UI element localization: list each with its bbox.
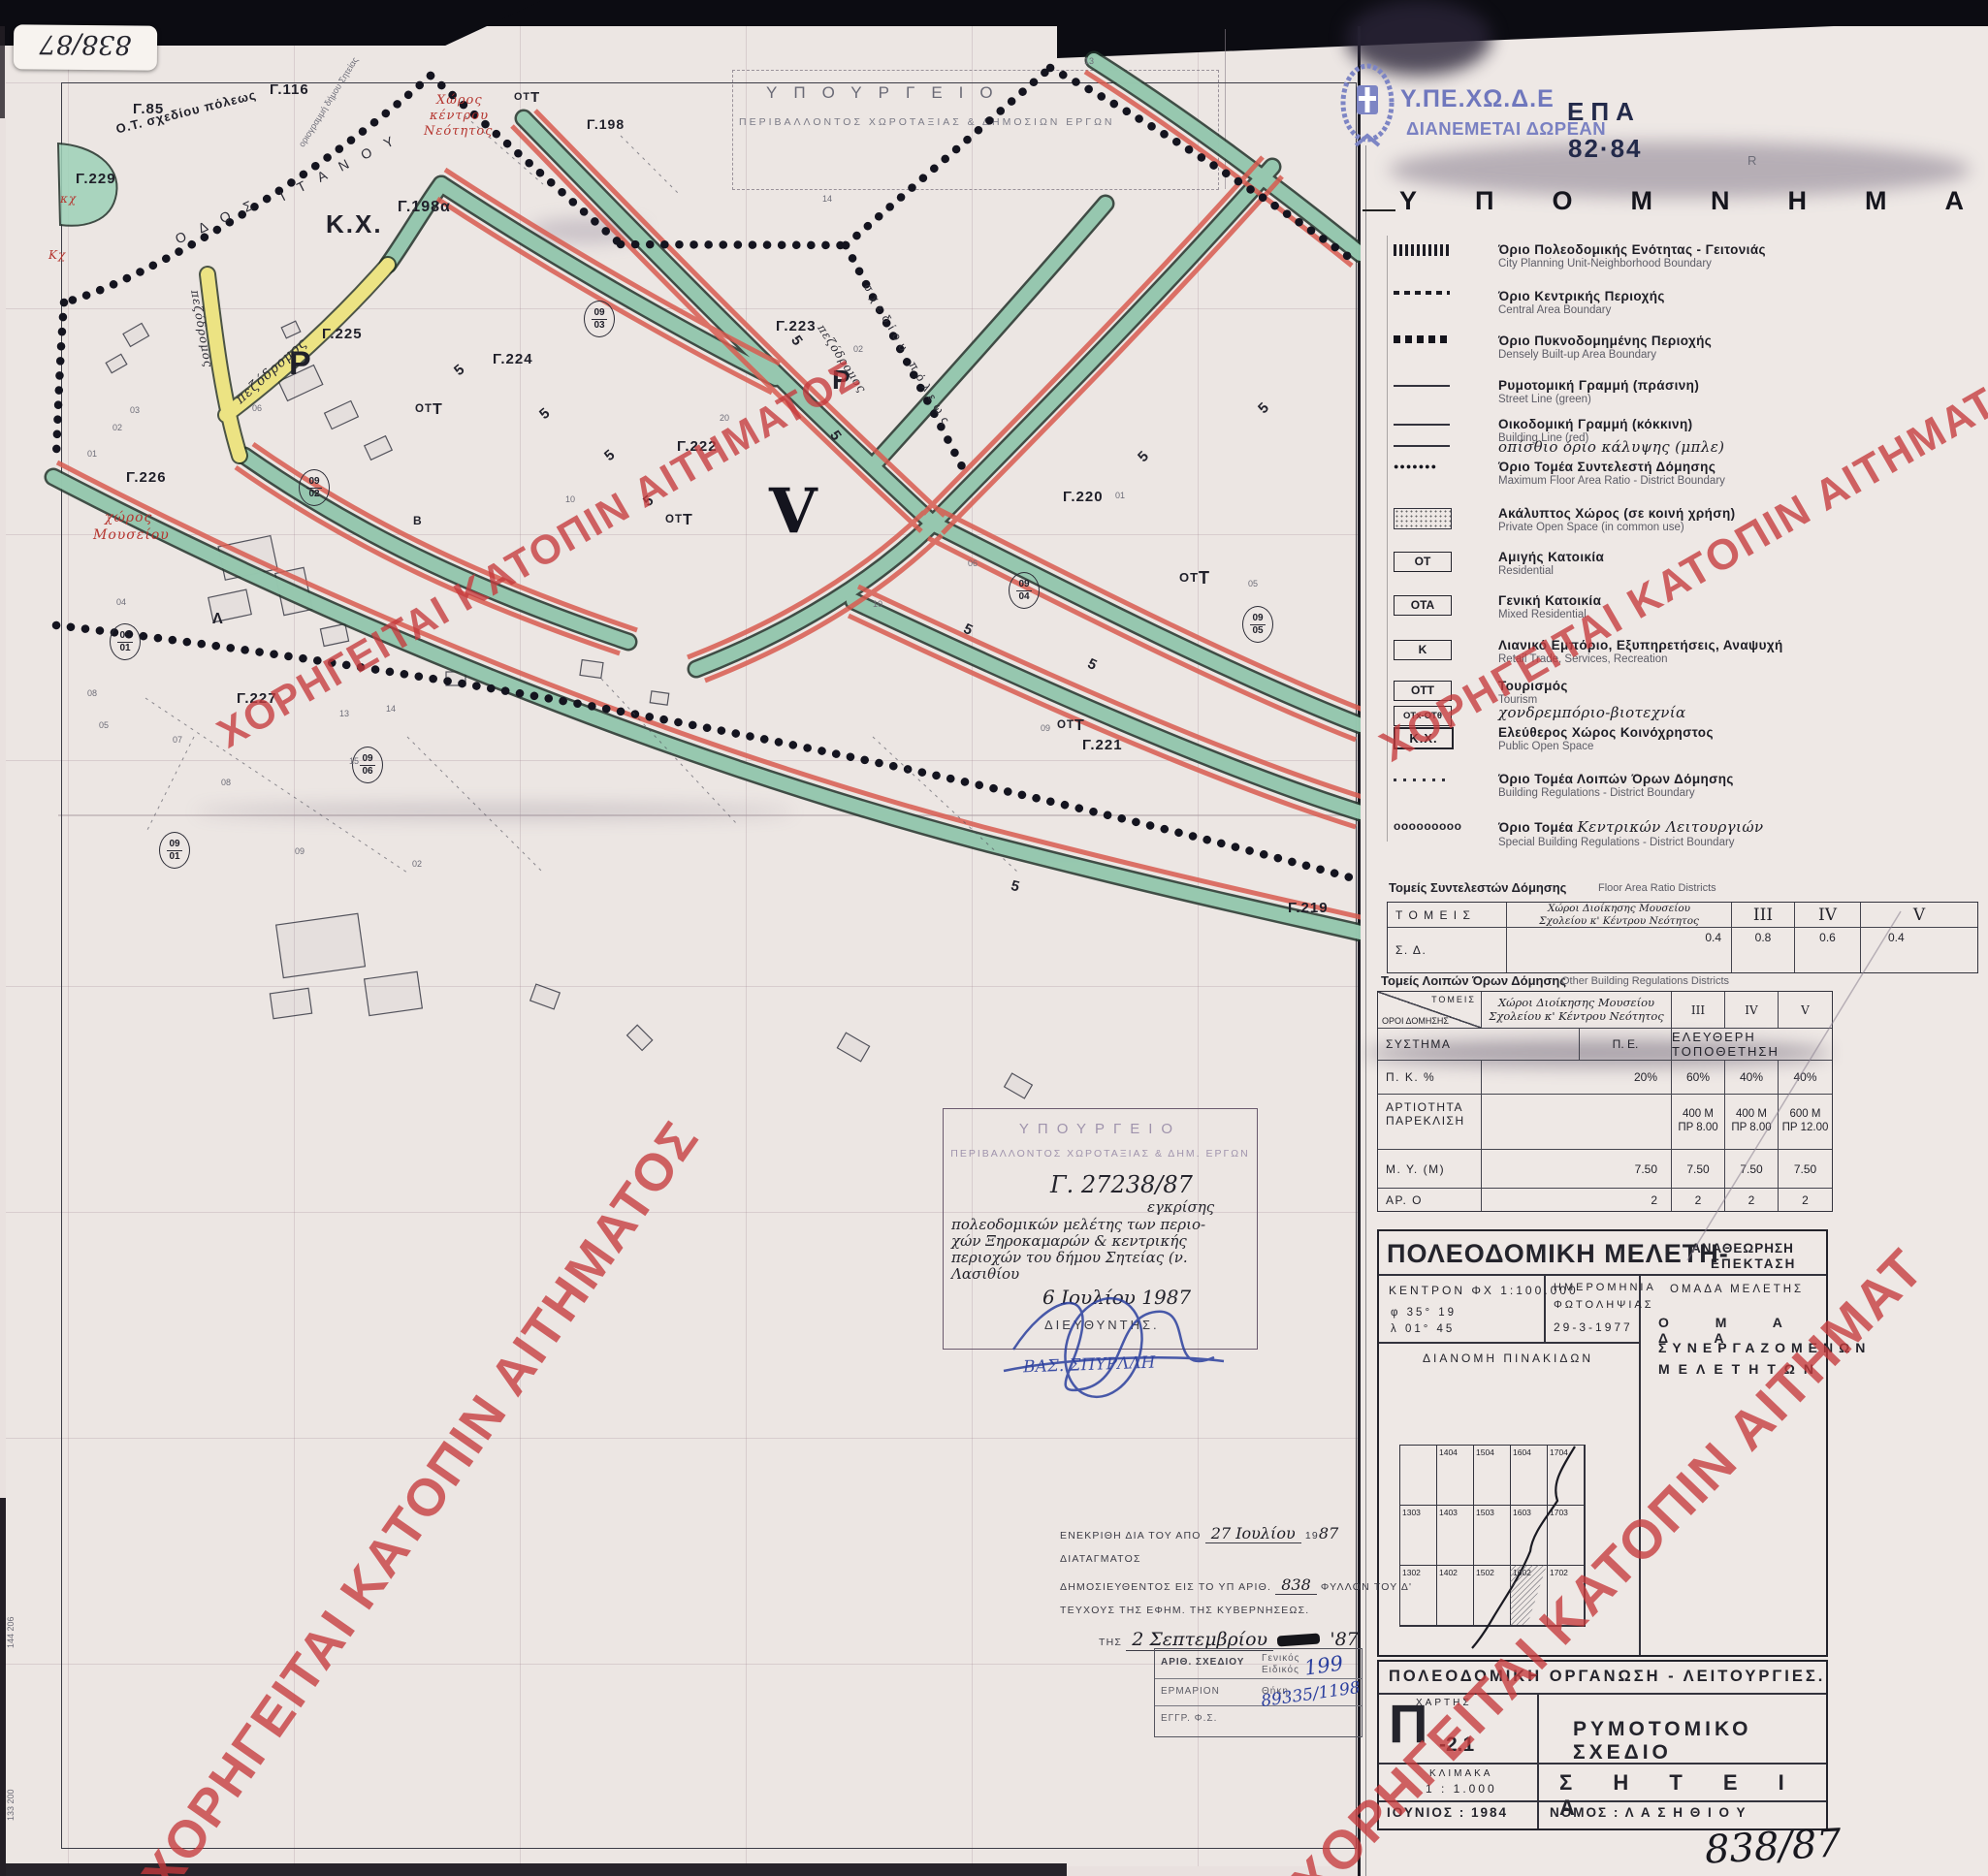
map-label: 14 xyxy=(386,704,396,714)
legend-label-gr: Όριο Τομέα Κεντρικών Λειτουργιών xyxy=(1498,818,1964,836)
map-label: Γ.198 xyxy=(587,116,625,132)
obr-aro-v: 2 xyxy=(1779,1189,1832,1211)
map-label: 0904 xyxy=(1009,572,1040,609)
far-value-iv: 0.6 xyxy=(1795,928,1861,972)
map-label: V xyxy=(769,475,818,548)
obr-diag-cell: ΤΟΜΕΙΣ ΟΡΟΙ ΔΟΜΗΣΗΣ xyxy=(1378,992,1482,1029)
map-label: 13 xyxy=(339,709,349,718)
legend-symbol-line xyxy=(1394,424,1450,426)
far-table: Τ Ο Μ Ε Ι Σ Χώροι Διοίκησης Μουσείου Σχο… xyxy=(1387,902,1978,973)
obr-pk-iv: 40% xyxy=(1725,1061,1779,1095)
legend-label-gr: Ρυμοτομική Γραμμή (πράσινη) xyxy=(1498,378,1964,393)
legend-symbol-line xyxy=(1394,445,1450,447)
legend-label-gr: χονδρεμπόριο-βιοτεχνία xyxy=(1498,704,1964,721)
epa-label: ΕΠΑ xyxy=(1567,97,1641,127)
map-label: Γ.221 xyxy=(1082,737,1123,753)
obr-my-iv: 7.50 xyxy=(1725,1150,1779,1189)
far-value-iii: 0.8 xyxy=(1732,928,1795,972)
legend-label-gr: Ακάλυπτος Χώρος (σε κοινή χρήση) xyxy=(1498,506,1964,521)
legend-label-gr: Όριο Τομέα Λοιπών Όρων Δόμησης xyxy=(1498,772,1964,786)
legend-label-en: Central Area Boundary xyxy=(1498,304,1964,316)
map-label: Γ.225 xyxy=(322,326,363,342)
map-label: 05 xyxy=(99,720,109,730)
obr-my-hand: 7.50 xyxy=(1482,1150,1672,1189)
obr-pk-hand: 20% xyxy=(1482,1061,1672,1095)
legend-label-en: Special Building Regulations - District … xyxy=(1498,837,1964,848)
banner: ΠΟΛΕΟΔΟΜΙΚΗ ΟΡΓΑΝΩΣΗ - ΛΕΙΤΟΥΡΓΙΕΣ. xyxy=(1389,1668,1825,1686)
map-label: 0905 xyxy=(1242,606,1273,643)
far-hand-value: 0.4 xyxy=(1507,928,1732,972)
map-label: Γ.220 xyxy=(1063,489,1104,505)
map-label: Γ.229 xyxy=(76,171,116,187)
obr-my-v: 7.50 xyxy=(1779,1150,1832,1189)
obr-art-v: 600 MΠΡ 12.00 xyxy=(1779,1095,1832,1150)
phi: φ 35° 19 xyxy=(1391,1307,1457,1319)
far-hand-head: Χώροι Διοίκησης Μουσείου Σχολείου κ' Κέν… xyxy=(1507,903,1732,928)
dianomi-label: ΔΙΑΝΟΜΗ ΠΙΝΑΚΙΔΩΝ xyxy=(1423,1351,1593,1365)
photo-date-label2: ΦΩΤΟΛΗΨΙΑΣ xyxy=(1554,1299,1654,1311)
legend-label-en: Densely Built-up Area Boundary xyxy=(1498,349,1964,361)
obr-pk-iii: 60% xyxy=(1672,1061,1725,1095)
legend-symbol-ticks xyxy=(1394,779,1450,781)
map-label: Κ.Χ. xyxy=(326,209,383,239)
legend-symbol-dashes xyxy=(1394,291,1450,295)
legend-title-rule xyxy=(1363,209,1395,211)
map-label: 09 xyxy=(295,846,305,856)
map-label: Χώρος xyxy=(436,93,483,108)
legend-label-en: City Planning Unit-Neighborhood Boundary xyxy=(1498,258,1964,270)
map-label: 10 xyxy=(873,599,882,609)
map-label: R xyxy=(1748,153,1756,168)
map-label: Γ.198α xyxy=(398,199,451,216)
map-label: κχ xyxy=(60,192,77,206)
legend-label-en: Street Line (green) xyxy=(1498,394,1964,405)
map-label: 144 206 xyxy=(6,1616,16,1648)
far-col-v: V xyxy=(1861,903,1977,928)
map-label: Β xyxy=(413,514,423,527)
map-label: Γ.116 xyxy=(270,81,309,98)
far-row-label: Σ. Δ. xyxy=(1388,928,1507,972)
map-label: Γ.223 xyxy=(776,318,817,334)
map-label: Γ.226 xyxy=(126,469,167,486)
obr-art-iv: 400 MΠΡ 8.00 xyxy=(1725,1095,1779,1150)
nomos: ΝΟΜΟΣ : Λ Α Σ Η Θ Ι Ο Υ xyxy=(1550,1805,1747,1820)
obr-pk-v: 40% xyxy=(1779,1061,1832,1095)
map-label: ΟΤΤ xyxy=(1057,717,1085,735)
agency-name: Υ.ΠΕ.ΧΩ.Δ.Ε xyxy=(1400,85,1555,113)
far-value-v: 0.4 xyxy=(1861,928,1977,972)
obr-aro-label: ΑΡ. Ο xyxy=(1378,1189,1482,1211)
obr-my-iii: 7.50 xyxy=(1672,1150,1725,1189)
legend-label-gr: Όριο Πολεοδομικής Ενότητας - Γειτονιάς xyxy=(1498,242,1964,257)
photo-date: 29-3-1977 xyxy=(1554,1320,1633,1334)
obr-col-v: V xyxy=(1779,992,1832,1029)
map-label: 02 xyxy=(112,423,122,432)
map-label: Μουσείου xyxy=(93,527,170,543)
map-label: 08 xyxy=(87,688,97,698)
photo-date-label1: ΗΜΕΡΟΜΗΝΙΑ xyxy=(1554,1282,1656,1293)
study-title2a: ΑΝΑΘΕΩΡΗΣΗ xyxy=(1691,1241,1794,1256)
map-label: 09 xyxy=(1041,723,1050,733)
legend-label-gr: Όριο Κεντρικής Περιοχής xyxy=(1498,289,1964,303)
scanned-planning-map-sheet: 838/87 ΥΠΟΥΡΓΕΙΟ ΠΕΡΙΒΑΛΛΟΝΤΟΣ ΧΩΡΟΤΑΞΙΑ… xyxy=(0,0,1988,1876)
far-table-title-gr: Τομείς Συντελεστών Δόμησης xyxy=(1389,880,1566,895)
legend-symbol-dots: ●●●●●●● xyxy=(1394,461,1450,471)
legend-symbol-line xyxy=(1394,385,1450,387)
obr-table-title-gr: Τομείς Λοιπών Όρων Δόμησης xyxy=(1381,973,1566,988)
map-label: 10 xyxy=(565,494,575,504)
obr-art-label: ΑΡΤΙΟΤΗΤΑ ΠΑΡΕΚΛΙΣΗ xyxy=(1378,1095,1482,1150)
map-label: Κχ xyxy=(48,248,66,262)
far-col-head: Τ Ο Μ Ε Ι Σ xyxy=(1388,903,1507,928)
map-label: 06 xyxy=(968,558,978,568)
obr-art-hand xyxy=(1482,1095,1672,1150)
map-label: 07 xyxy=(173,735,182,745)
legend-symbol-stipple xyxy=(1394,508,1452,529)
obr-hand-head: Χώροι Διοίκησης Μουσείου Σχολείου κ' Κέν… xyxy=(1482,992,1672,1029)
obr-systima-pe: Π. Ε. xyxy=(1580,1029,1672,1061)
map-label: 03 xyxy=(130,405,140,415)
study-title2b: ΕΠΕΚΤΑΣΗ xyxy=(1711,1256,1796,1271)
map-label: Νεότητος xyxy=(424,124,493,139)
legend-label-gr: Γενική Κατοικία xyxy=(1498,593,1964,608)
study-title: ΠΟΛΕΟΔΟΜΙΚΗ ΜΕΛΕΤΗ- xyxy=(1387,1239,1729,1269)
map-label: ΟΤΤ xyxy=(514,89,540,106)
far-col-iii: ΙΙΙ xyxy=(1732,903,1795,928)
map-label: 01 xyxy=(87,449,97,459)
legend-symbol-blocks xyxy=(1394,335,1450,343)
map-label: 13 xyxy=(1084,56,1094,66)
map-label: χώρος xyxy=(105,510,152,525)
kentron: ΚΕΝΤΡΟΝ ΦΧ 1:100.000 xyxy=(1389,1284,1579,1297)
legend-symbol-bars xyxy=(1394,244,1450,256)
file-number-handwritten: 838/87 xyxy=(1704,1821,1843,1872)
map-label: 0901 xyxy=(159,832,190,869)
map-label: 133 200 xyxy=(6,1789,16,1821)
obr-col-iv: ΙV xyxy=(1725,992,1779,1029)
legend-symbol-box: Κ xyxy=(1394,640,1452,660)
map-label: ΟΤΤ xyxy=(1179,568,1210,588)
drawing-name: ΡΥΜΟΤΟΜΙΚΟ ΣΧΕΔΙΟ xyxy=(1573,1718,1826,1765)
obr-my-label: Μ. Υ. (Μ) xyxy=(1378,1150,1482,1189)
legend-label-en: Building Regulations - District Boundary xyxy=(1498,787,1964,799)
map-label: 02 xyxy=(853,344,863,354)
obr-systima-span: ΕΛΕΥΘΕΡΗ ΤΟΠΟΘΕΤΗΣΗ xyxy=(1672,1029,1832,1061)
street-network xyxy=(53,60,1361,933)
map-label: 06 xyxy=(252,403,262,413)
far-table-title-en: Floor Area Ratio Districts xyxy=(1598,882,1716,894)
legend-symbol-rings: ooooooooo xyxy=(1394,820,1450,832)
legend-symbol-box: ΟΤ xyxy=(1394,552,1452,572)
map-label: 05 xyxy=(1248,579,1258,588)
obr-table: ΤΟΜΕΙΣ ΟΡΟΙ ΔΟΜΗΣΗΣ Χώροι Διοίκησης Μουσ… xyxy=(1377,991,1833,1212)
map-label: κέντρου xyxy=(430,109,489,123)
map-label: 01 xyxy=(1115,491,1125,500)
lambda: λ 01° 45 xyxy=(1391,1323,1455,1335)
epa-years: 82·84 xyxy=(1568,134,1643,164)
map-label: 0901 xyxy=(110,623,141,660)
map-label: ΟΤΤ xyxy=(415,401,443,419)
map-label: 15 xyxy=(349,756,359,766)
map-label: Λ xyxy=(212,611,224,628)
obr-col-iii: ΙΙΙ xyxy=(1672,992,1725,1029)
obr-systima-label: ΣΥΣΤΗΜΑ xyxy=(1378,1029,1580,1061)
map-drawing xyxy=(0,0,1361,1876)
map-label: 08 xyxy=(221,778,231,787)
map-label: Γ.224 xyxy=(493,351,533,367)
legend-label-gr: Όριο Πυκνοδομημένης Περιοχής xyxy=(1498,334,1964,348)
obr-table-title-en: Other Building Regulations Districts xyxy=(1561,975,1729,987)
map-label: ΟΤΤ xyxy=(665,512,693,529)
map-label: Γ.219 xyxy=(1288,900,1329,916)
legend-label-en: Public Open Space xyxy=(1498,741,1964,752)
obr-pk-label: Π. Κ. % xyxy=(1378,1061,1482,1095)
legend-title: ΥΠΟΜΝΗΜΑ xyxy=(1399,186,1988,216)
far-col-iv: ΙV xyxy=(1795,903,1861,928)
map-label: 04 xyxy=(116,597,126,607)
obr-aro-iii: 2 xyxy=(1672,1189,1725,1211)
obr-aro-hand: 2 xyxy=(1482,1189,1672,1211)
map-label: 0903 xyxy=(584,301,615,337)
team-head: ΟΜΑΔΑ ΜΕΛΕΤΗΣ xyxy=(1670,1284,1804,1295)
legend-label-gr: Ελεύθερος Χώρος Κοινόχρηστος xyxy=(1498,725,1964,740)
obr-aro-iv: 2 xyxy=(1725,1189,1779,1211)
legend-symbol-box: ΟΤΑ xyxy=(1394,595,1452,616)
map-label: 0902 xyxy=(299,469,330,506)
map-label: 02 xyxy=(412,859,422,869)
map-label: 14 xyxy=(822,194,832,204)
legend-label-gr: Τουρισμός xyxy=(1498,679,1964,693)
obr-art-iii: 400 MΠΡ 8.00 xyxy=(1672,1095,1725,1150)
